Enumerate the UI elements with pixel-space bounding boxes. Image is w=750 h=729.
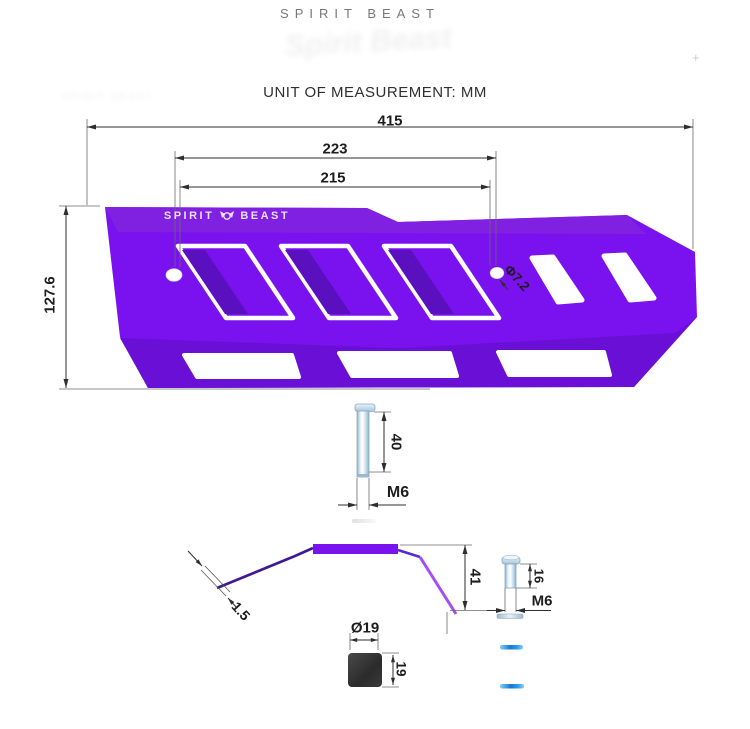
product-spec-drawing: SPIRIT BEAST Spirit Beast SPIRIT BEAST +…	[0, 0, 750, 729]
spirit-beast-emblem-icon	[219, 210, 235, 222]
dim-hole-spacing-inner-label: 215	[320, 170, 345, 187]
part-logo-left: SPIRIT	[164, 210, 214, 222]
dim-long-bolt-length-label: 40	[388, 434, 405, 451]
profile-extensions	[400, 545, 487, 634]
dim-rubber-diameter-label: Ø19	[351, 620, 379, 637]
profile-section	[188, 544, 456, 614]
dim-short-bolt-length-label: 16	[532, 569, 547, 583]
dim-long-bolt-thread-label: M6	[387, 484, 409, 502]
guard-plate	[105, 207, 697, 388]
dim-profile-height-label: 41	[467, 569, 484, 586]
blue-strip-2	[500, 684, 524, 689]
bottom-cutout-3	[498, 352, 610, 375]
short-bolt	[497, 555, 523, 618]
bottom-cutout-1	[184, 355, 299, 377]
part-logo: SPIRIT BEAST	[148, 209, 306, 223]
dim-short-bolt-thread-label: M6	[532, 593, 553, 610]
dim-hole-spacing-outer-label: 223	[322, 141, 347, 158]
bolt-reflection	[352, 519, 376, 523]
blue-strip-1	[500, 645, 523, 650]
dim-overall-width-label: 415	[377, 113, 402, 130]
rubber-block-group	[348, 633, 399, 687]
short-bolt-washer	[497, 614, 523, 619]
dim-overall-height-label: 127.6	[42, 276, 59, 314]
bottom-cutout-2	[339, 353, 457, 376]
profile-accent-edge	[420, 557, 456, 614]
rubber-block	[348, 653, 382, 687]
part-logo-right: BEAST	[240, 210, 290, 222]
dim-rubber-height-label: 19	[394, 661, 409, 676]
mounting-hole-left	[166, 269, 182, 282]
